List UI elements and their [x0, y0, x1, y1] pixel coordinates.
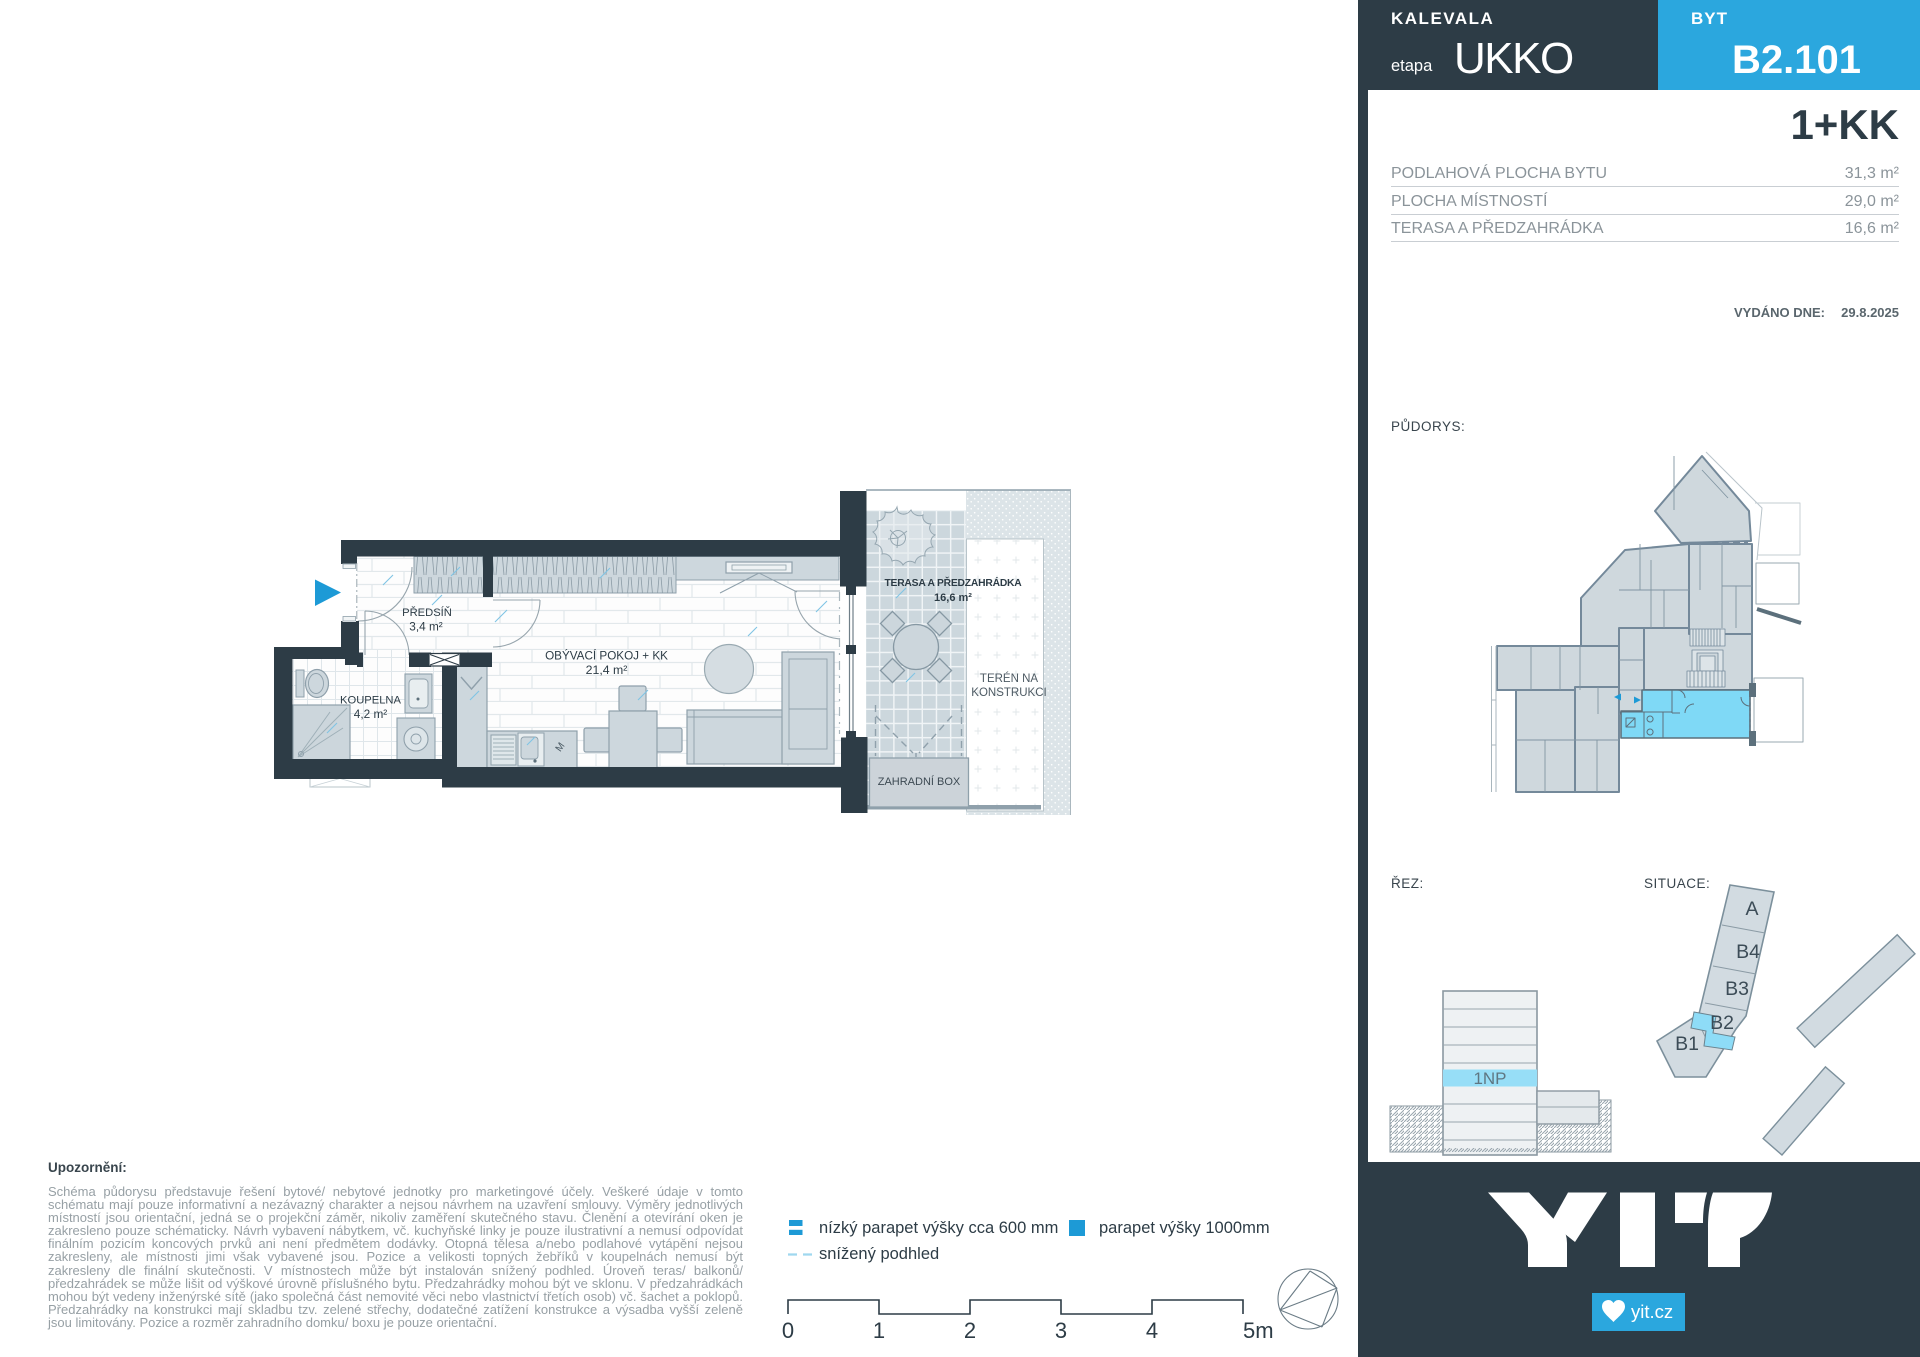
svg-text:TERÉN NA: TERÉN NA	[980, 672, 1038, 685]
svg-text:2: 2	[964, 1318, 976, 1343]
svg-text:B4: B4	[1736, 941, 1760, 963]
svg-text:4: 4	[1146, 1318, 1158, 1343]
svg-text:ZAHRADNÍ BOX: ZAHRADNÍ BOX	[878, 775, 961, 788]
svg-text:PŘEDSÍŇ: PŘEDSÍŇ	[402, 606, 452, 619]
svg-text:yit.cz: yit.cz	[1631, 1301, 1673, 1322]
svg-text:1NP: 1NP	[1473, 1069, 1506, 1088]
svg-text:nízký parapet výšky cca 600 mm: nízký parapet výšky cca 600 mm	[819, 1219, 1058, 1237]
svg-text:1: 1	[873, 1318, 885, 1343]
svg-text:A: A	[1745, 898, 1758, 920]
svg-text:5m: 5m	[1243, 1318, 1274, 1343]
svg-text:B2: B2	[1710, 1012, 1734, 1034]
svg-text:21,4 m²: 21,4 m²	[586, 663, 628, 677]
svg-text:TERASA A PŘEDZAHRÁDKA: TERASA A PŘEDZAHRÁDKA	[884, 576, 1022, 589]
svg-text:OBÝVACÍ POKOJ + KK: OBÝVACÍ POKOJ + KK	[545, 650, 668, 663]
svg-text:16,6 m²: 16,6 m²	[934, 592, 972, 604]
svg-text:parapet výšky 1000mm: parapet výšky 1000mm	[1099, 1219, 1270, 1237]
svg-text:snížený podhled: snížený podhled	[819, 1245, 939, 1263]
svg-text:4,2 m²: 4,2 m²	[354, 707, 388, 721]
svg-text:KONSTRUKCI: KONSTRUKCI	[971, 687, 1046, 699]
svg-text:B3: B3	[1725, 978, 1749, 1000]
svg-text:3: 3	[1055, 1318, 1067, 1343]
svg-text:3,4 m²: 3,4 m²	[409, 620, 443, 634]
svg-text:KOUPELNA: KOUPELNA	[340, 695, 401, 707]
svg-text:B1: B1	[1675, 1033, 1699, 1055]
svg-text:0: 0	[782, 1318, 794, 1343]
